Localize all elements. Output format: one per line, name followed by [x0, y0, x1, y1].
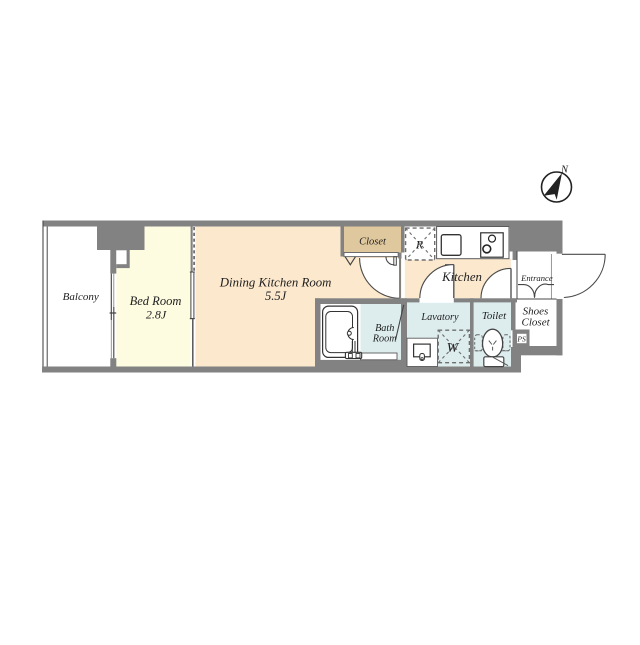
svg-text:Bath: Bath: [375, 323, 394, 334]
svg-text:R: R: [415, 240, 423, 252]
svg-text:Closet: Closet: [359, 237, 387, 248]
svg-text:Balcony: Balcony: [63, 291, 99, 303]
svg-text:2.8J: 2.8J: [146, 308, 167, 322]
svg-text:Closet: Closet: [522, 317, 551, 329]
svg-text:Toilet: Toilet: [482, 310, 507, 322]
svg-text:Dining Kitchen Room: Dining Kitchen Room: [219, 275, 332, 289]
svg-text:Entrance: Entrance: [520, 273, 553, 283]
svg-text:N: N: [560, 165, 569, 176]
svg-text:PS: PS: [516, 335, 526, 344]
svg-text:5.5J: 5.5J: [265, 289, 288, 303]
svg-text:Bed Room: Bed Room: [130, 294, 182, 308]
svg-text:W: W: [447, 341, 460, 356]
svg-text:Kitchen: Kitchen: [441, 270, 482, 284]
svg-text:Room: Room: [372, 334, 397, 345]
svg-text:Lavatory: Lavatory: [420, 312, 459, 323]
